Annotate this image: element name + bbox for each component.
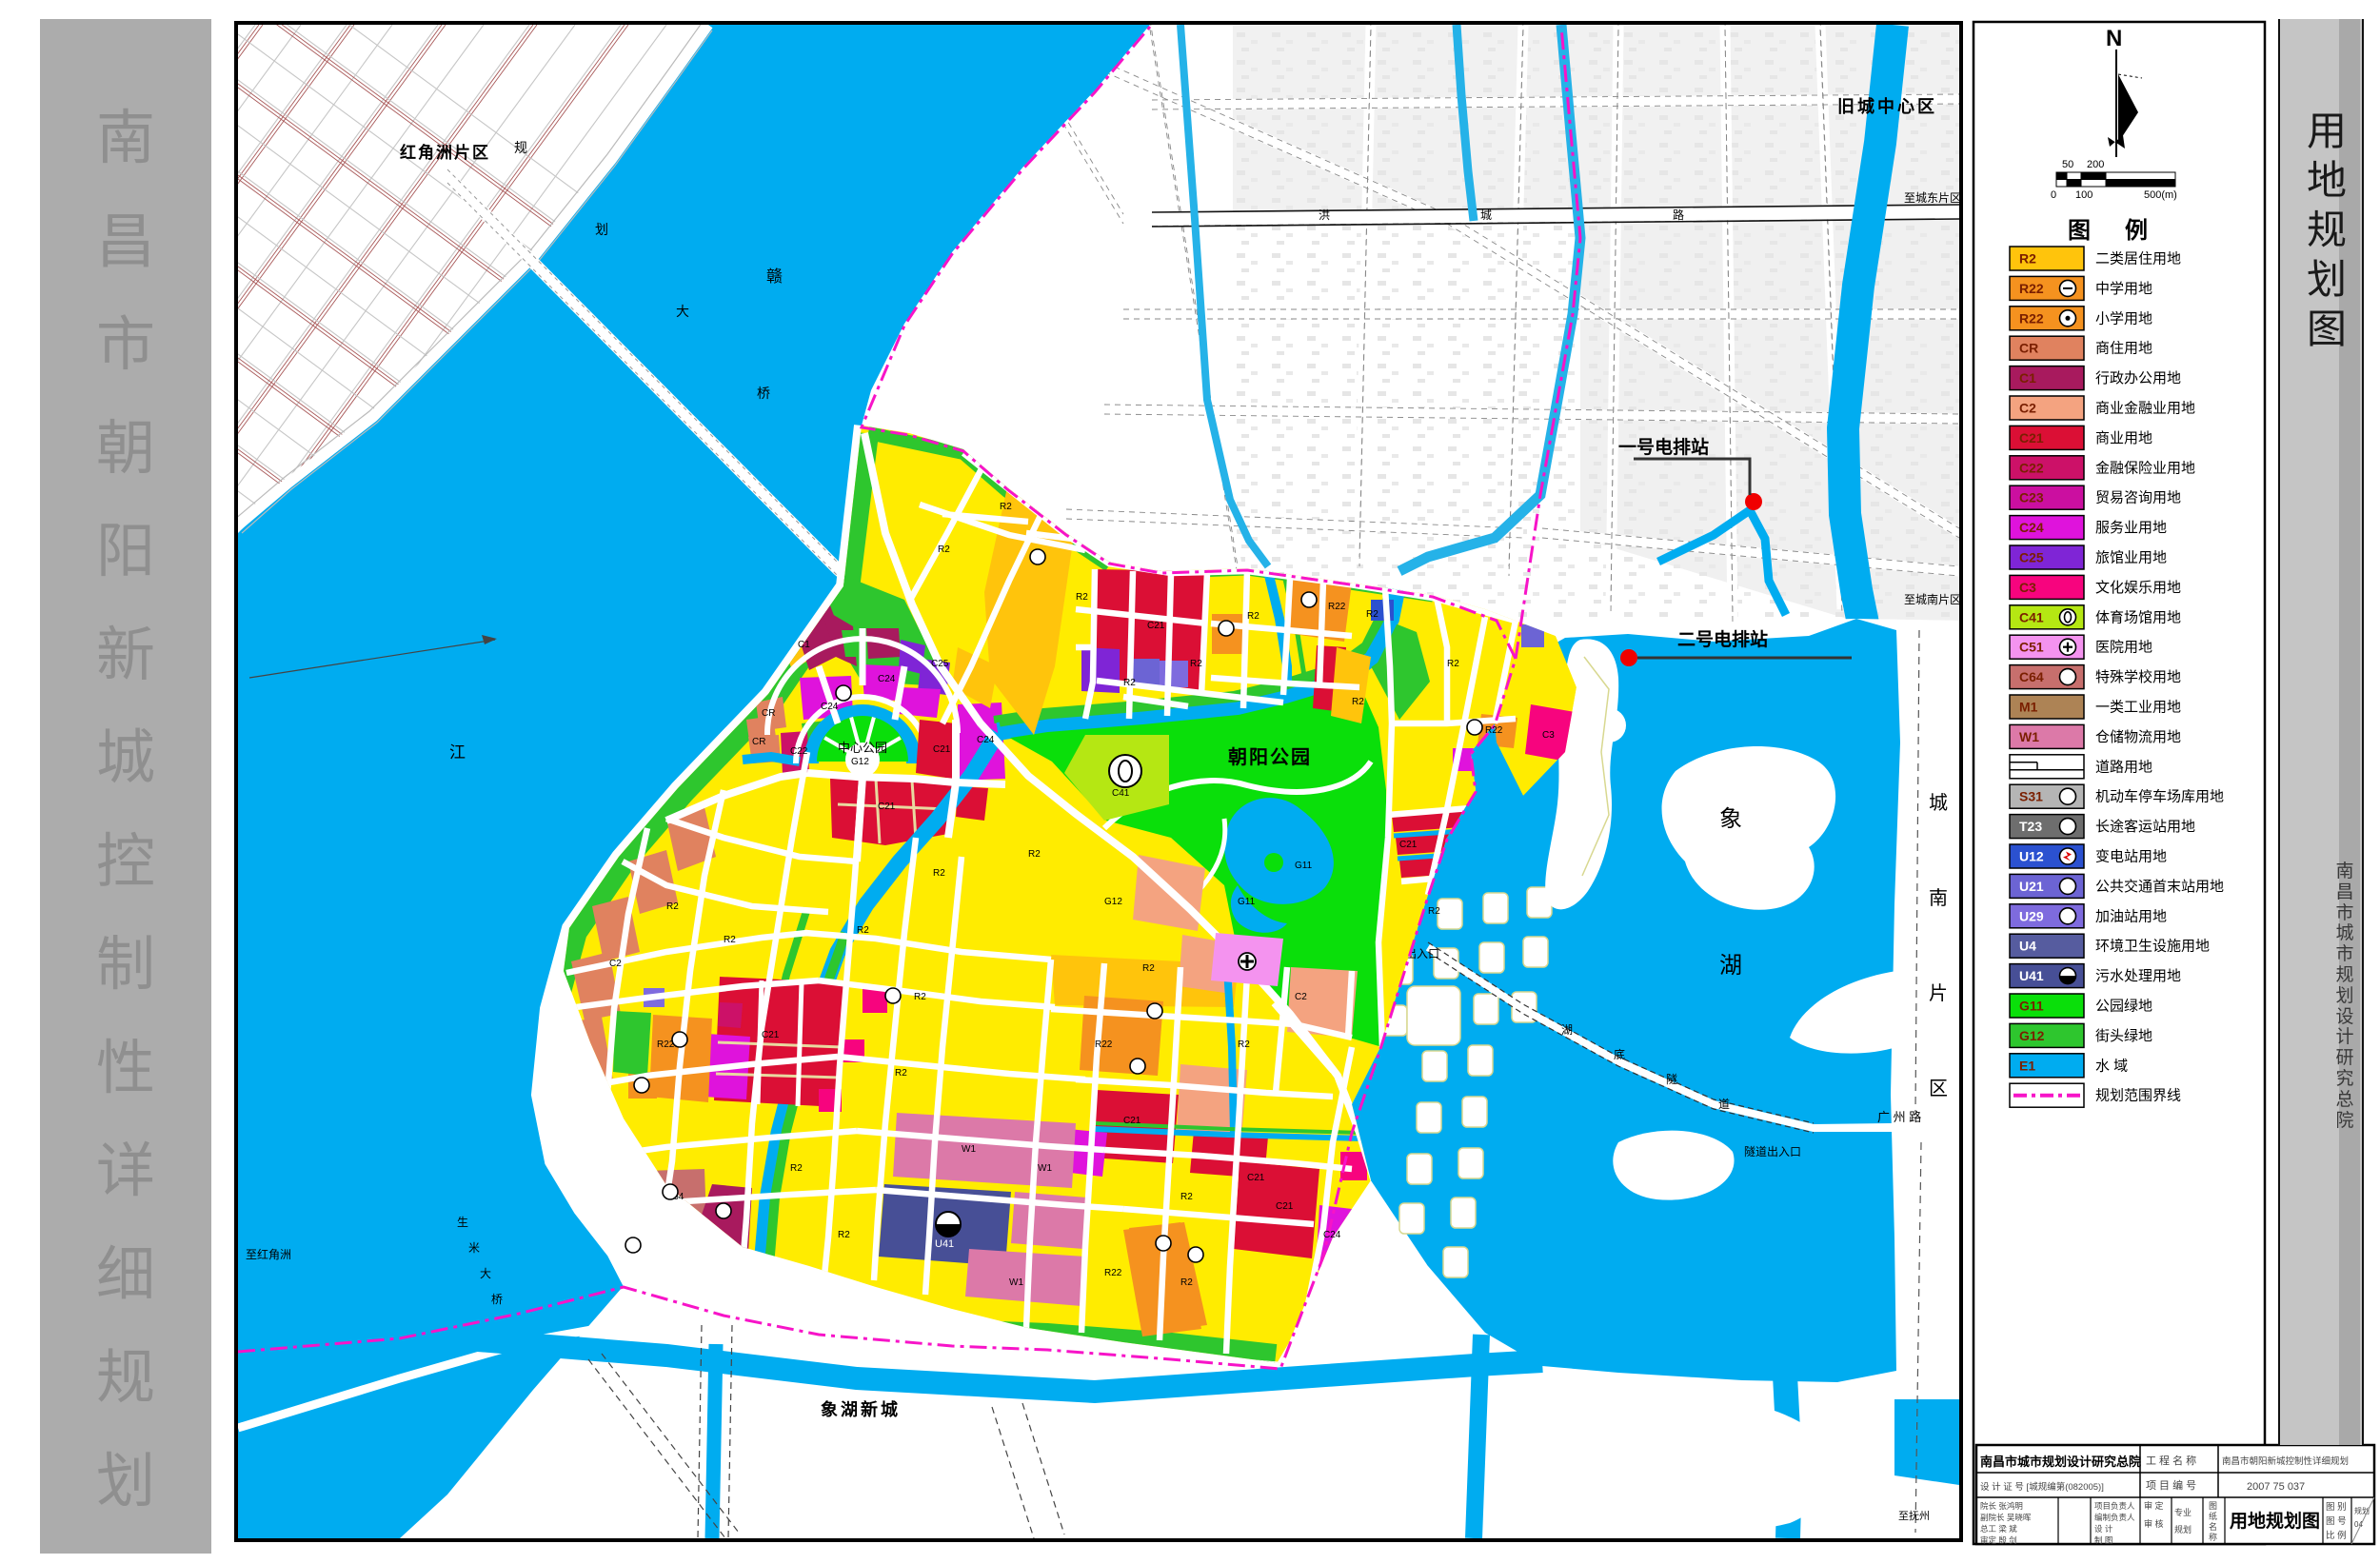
svg-text:R2: R2: [790, 1163, 803, 1174]
svg-text:C22: C22: [790, 746, 808, 757]
svg-text:C24: C24: [821, 702, 839, 712]
svg-text:专业: 专业: [2174, 1507, 2192, 1517]
svg-text:M1: M1: [2019, 700, 2038, 715]
svg-text:赣: 赣: [766, 267, 783, 286]
svg-text:规划: 规划: [2174, 1524, 2192, 1534]
svg-text:总工 梁 斌: 总工 梁 斌: [1980, 1524, 2017, 1534]
svg-text:C1: C1: [798, 640, 810, 650]
svg-text:规划范围界线: 规划范围界线: [2095, 1088, 2181, 1104]
svg-text:U41: U41: [935, 1238, 954, 1250]
svg-text:米: 米: [468, 1241, 480, 1255]
svg-text:路: 路: [1673, 208, 1684, 222]
svg-text:C21: C21: [1147, 621, 1165, 631]
svg-text:N: N: [2106, 26, 2122, 51]
svg-text:副院长 吴晓晖: 副院长 吴晓晖: [1980, 1513, 2032, 1522]
svg-text:公共交通首末站用地: 公共交通首末站用地: [2095, 878, 2224, 895]
svg-text:环境卫生设施用地: 环境卫生设施用地: [2095, 938, 2210, 955]
svg-text:象湖新城: 象湖新城: [821, 1399, 901, 1419]
svg-text:R22: R22: [1104, 1268, 1122, 1278]
svg-text:称: 称: [2209, 1532, 2217, 1542]
svg-text:商业金融业用地: 商业金融业用地: [2095, 401, 2195, 417]
svg-text:中心公园: 中心公园: [838, 741, 887, 755]
svg-text:南昌市朝阳新城控制性详细规划: 南昌市朝阳新城控制性详细规划: [2222, 1455, 2349, 1467]
svg-text:C21: C21: [1276, 1201, 1294, 1212]
svg-text:至城南片区: 至城南片区: [1904, 592, 1961, 606]
svg-text:S31: S31: [2019, 789, 2043, 804]
svg-text:R2: R2: [2019, 251, 2036, 267]
svg-text:一类工业用地: 一类工业用地: [2095, 700, 2181, 716]
svg-text:R2: R2: [938, 544, 950, 555]
svg-text:城: 城: [1480, 208, 1492, 222]
svg-text:二类居住用地: 二类居住用地: [2095, 251, 2181, 267]
svg-text:R2: R2: [1123, 678, 1136, 688]
svg-text:W1: W1: [1009, 1277, 1023, 1288]
svg-text:工 程 名 称: 工 程 名 称: [2146, 1454, 2196, 1467]
svg-text:G12: G12: [1104, 897, 1122, 907]
svg-text:U29: U29: [2019, 908, 2044, 923]
svg-text:变电站用地: 变电站用地: [2095, 849, 2167, 865]
svg-text:C2: C2: [1295, 992, 1307, 1002]
svg-text:W1: W1: [2019, 729, 2039, 744]
svg-text:规: 规: [514, 140, 527, 155]
svg-text:R2: R2: [857, 925, 869, 936]
svg-text:城: 城: [1929, 792, 1948, 814]
svg-text:R2: R2: [1352, 697, 1364, 707]
svg-text:R2: R2: [1180, 1277, 1193, 1288]
svg-text:R2: R2: [1247, 611, 1259, 622]
svg-text:桥: 桥: [491, 1293, 503, 1306]
svg-text:R2: R2: [1428, 906, 1440, 917]
svg-text:小学用地: 小学用地: [2095, 310, 2152, 327]
svg-text:R2: R2: [1028, 849, 1041, 860]
svg-text:体育场馆用地: 体育场馆用地: [2095, 609, 2181, 625]
svg-text:R2: R2: [666, 901, 679, 912]
svg-text:比 例: 比 例: [2326, 1530, 2347, 1541]
svg-text:图 别: 图 别: [2326, 1502, 2347, 1513]
svg-text:C21: C21: [762, 1030, 780, 1040]
svg-text:G11: G11: [2019, 999, 2044, 1014]
svg-text:CR: CR: [752, 737, 765, 747]
svg-text:纸: 纸: [2209, 1511, 2217, 1521]
svg-text:C3: C3: [2019, 580, 2036, 595]
svg-text:W1: W1: [1038, 1163, 1052, 1174]
svg-text:院长 张鸿明: 院长 张鸿明: [1980, 1501, 2023, 1511]
svg-text:长途客运站用地: 长途客运站用地: [2095, 819, 2195, 835]
svg-text:R2: R2: [1447, 659, 1459, 669]
svg-text:服务业用地: 服务业用地: [2095, 520, 2167, 536]
svg-text:R2: R2: [1238, 1039, 1250, 1050]
svg-text:医院用地: 医院用地: [2095, 639, 2152, 656]
svg-text:仓储物流用地: 仓储物流用地: [2095, 729, 2181, 745]
svg-text:C3: C3: [1542, 730, 1555, 741]
svg-text:G11: G11: [1295, 861, 1313, 871]
svg-text:C24: C24: [2019, 520, 2044, 535]
svg-text:CR: CR: [762, 708, 775, 719]
svg-text:文化娱乐用地: 文化娱乐用地: [2095, 580, 2181, 596]
svg-text:R22: R22: [1485, 725, 1503, 736]
svg-text:R22: R22: [1328, 602, 1346, 612]
svg-text:200: 200: [2087, 159, 2104, 170]
svg-text:C64: C64: [2019, 669, 2044, 684]
svg-text:C51: C51: [2019, 640, 2044, 655]
svg-text:C21: C21: [1247, 1173, 1265, 1183]
svg-text:U41: U41: [2019, 968, 2044, 983]
svg-text:E1: E1: [2019, 1058, 2035, 1073]
svg-text:C21: C21: [878, 802, 896, 812]
svg-text:图: 图: [2068, 218, 2091, 244]
svg-text:R22: R22: [2019, 310, 2044, 326]
svg-text:加油站用地: 加油站用地: [2095, 908, 2167, 924]
svg-text:R2: R2: [1000, 502, 1012, 512]
svg-text:南: 南: [1929, 887, 1948, 909]
svg-text:R2: R2: [1366, 609, 1378, 620]
svg-text:0: 0: [2051, 189, 2056, 201]
svg-text:道路用地: 道路用地: [2095, 759, 2152, 775]
svg-text:R2: R2: [895, 1068, 907, 1079]
svg-text:桥: 桥: [757, 386, 770, 401]
svg-text:C21: C21: [933, 744, 951, 755]
svg-text:名: 名: [2209, 1521, 2217, 1532]
svg-text:水 域: 水 域: [2095, 1058, 2128, 1074]
svg-text:洪: 洪: [1319, 208, 1330, 222]
svg-text:R2: R2: [724, 935, 736, 945]
svg-text:C25: C25: [2019, 550, 2044, 565]
svg-text:图: 图: [2209, 1501, 2217, 1511]
svg-text:R2: R2: [933, 868, 945, 879]
svg-text:R2: R2: [1180, 1192, 1193, 1202]
svg-text:R2: R2: [1190, 659, 1202, 669]
svg-text:R2: R2: [1142, 963, 1155, 974]
svg-text:金融保险业用地: 金融保险业用地: [2095, 460, 2195, 476]
svg-text:C21: C21: [2019, 430, 2044, 445]
svg-text:R2: R2: [914, 992, 926, 1002]
svg-text:划: 划: [595, 222, 608, 237]
svg-text:图 号: 图 号: [2326, 1516, 2347, 1527]
svg-text:G12: G12: [2019, 1028, 2045, 1043]
svg-text:商业用地: 商业用地: [2095, 430, 2152, 446]
svg-text:例: 例: [2125, 218, 2148, 244]
svg-text:2007 75 037: 2007 75 037: [2247, 1481, 2305, 1493]
svg-text:一号电排站: 一号电排站: [1618, 436, 1709, 458]
svg-text:C21: C21: [1123, 1116, 1141, 1126]
svg-text:贸易咨询用地: 贸易咨询用地: [2095, 490, 2181, 506]
svg-text:旅馆业用地: 旅馆业用地: [2095, 550, 2167, 566]
svg-text:U21: U21: [2019, 879, 2044, 894]
svg-text:50: 50: [2062, 159, 2073, 170]
svg-text:湖: 湖: [1561, 1022, 1573, 1037]
svg-text:T23: T23: [2019, 819, 2042, 834]
svg-text:特殊学校用地: 特殊学校用地: [2095, 669, 2181, 685]
svg-text:制 图: 制 图: [2094, 1535, 2112, 1545]
svg-text:行政办公用地: 行政办公用地: [2095, 370, 2181, 386]
svg-text:街头绿地: 街头绿地: [2095, 1028, 2152, 1044]
svg-text:编制负责人: 编制负责人: [2094, 1513, 2135, 1522]
svg-text:CR: CR: [2019, 341, 2038, 356]
svg-text:中学用地: 中学用地: [2095, 281, 2152, 297]
svg-text:二号电排站: 二号电排站: [1677, 628, 1768, 650]
svg-text:U12: U12: [2019, 849, 2044, 864]
svg-text:红角洲片区: 红角洲片区: [400, 143, 490, 162]
svg-text:审 定: 审 定: [2144, 1500, 2164, 1511]
svg-text:南昌市城市规划设计研究总院: 南昌市城市规划设计研究总院: [1980, 1455, 2141, 1469]
svg-text:设 计: 设 计: [2094, 1524, 2113, 1534]
svg-text:江: 江: [449, 743, 466, 762]
svg-text:R22: R22: [1095, 1039, 1113, 1050]
svg-text:生: 生: [457, 1216, 468, 1229]
svg-text:C2: C2: [2019, 401, 2036, 416]
svg-text:道: 道: [1718, 1098, 1730, 1111]
svg-text:C41: C41: [1112, 788, 1130, 799]
svg-text:R2: R2: [838, 1230, 850, 1240]
svg-text:底: 底: [1614, 1047, 1625, 1061]
svg-text:审 核: 审 核: [2144, 1518, 2164, 1529]
svg-text:污水处理用地: 污水处理用地: [2095, 968, 2181, 984]
svg-text:C24: C24: [977, 735, 995, 745]
svg-text:R22: R22: [2019, 281, 2044, 296]
svg-text:C41: C41: [2019, 609, 2044, 624]
svg-text:C24: C24: [878, 674, 896, 684]
svg-text:隧: 隧: [1666, 1072, 1677, 1086]
svg-text:公园绿地: 公园绿地: [2095, 999, 2152, 1015]
svg-text:广 州 路: 广 州 路: [1877, 1110, 1921, 1124]
svg-text:项目负责人: 项目负责人: [2094, 1501, 2135, 1511]
svg-text:至城东片区: 至城东片区: [1904, 191, 1961, 205]
svg-text:C21: C21: [1399, 840, 1418, 850]
svg-text:大: 大: [676, 304, 689, 319]
svg-text:100: 100: [2075, 189, 2092, 201]
svg-text:设 计 证 号 [城规编第(082005)]: 设 计 证 号 [城规编第(082005)]: [1980, 1481, 2104, 1493]
svg-text:片: 片: [1929, 982, 1948, 1004]
svg-text:至抚州: 至抚州: [1898, 1509, 1930, 1522]
svg-text:机动车停车场库用地: 机动车停车场库用地: [2095, 789, 2224, 805]
svg-text:隧道出入口: 隧道出入口: [1744, 1144, 1801, 1158]
svg-text:商住用地: 商住用地: [2095, 341, 2152, 357]
svg-text:至红角洲: 至红角洲: [246, 1247, 291, 1261]
svg-text:项 目 编 号: 项 目 编 号: [2146, 1478, 2196, 1492]
svg-text:大: 大: [480, 1267, 491, 1280]
svg-text:C1: C1: [2019, 370, 2036, 386]
svg-text:旧城中心区: 旧城中心区: [1837, 96, 1937, 116]
svg-text:用地规划图: 用地规划图: [2230, 1510, 2320, 1532]
svg-text:C2: C2: [609, 959, 622, 969]
svg-text:审定 殷 剑: 审定 殷 剑: [1980, 1535, 2017, 1545]
svg-text:湖: 湖: [1719, 953, 1742, 979]
svg-text:W1: W1: [962, 1144, 976, 1155]
svg-text:C23: C23: [2019, 490, 2044, 505]
svg-text:朝阳公园: 朝阳公园: [1228, 746, 1312, 768]
svg-text:象: 象: [1719, 806, 1742, 832]
svg-text:G12: G12: [851, 757, 869, 767]
svg-text:C24: C24: [1323, 1230, 1341, 1240]
svg-text:G11: G11: [1238, 897, 1256, 907]
svg-text:R2: R2: [1076, 592, 1088, 603]
svg-text:U4: U4: [2019, 939, 2036, 954]
svg-text:C25: C25: [931, 659, 949, 669]
svg-text:500(m): 500(m): [2144, 189, 2177, 201]
svg-text:区: 区: [1929, 1079, 1948, 1099]
svg-text:C22: C22: [2019, 460, 2044, 475]
